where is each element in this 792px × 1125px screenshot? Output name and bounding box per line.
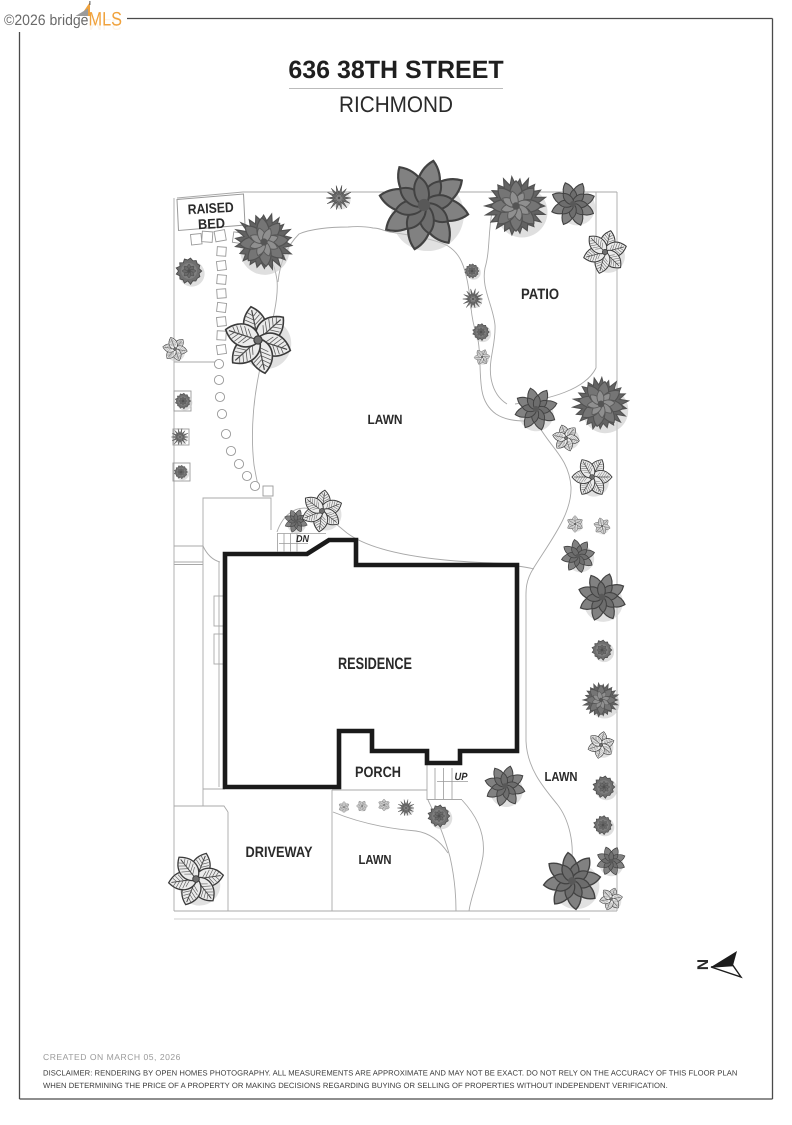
svg-text:N: N [695,959,712,970]
svg-text:PATIO: PATIO [521,286,559,303]
svg-text:PORCH: PORCH [355,764,401,781]
svg-text:CREATED ON MARCH 05, 2026: CREATED ON MARCH 05, 2026 [43,1052,181,1062]
svg-text:WHEN DETERMINING THE PRICE OF: WHEN DETERMINING THE PRICE OF A PROPERTY… [43,1081,668,1090]
svg-text:MLS: MLS [89,15,123,33]
svg-text:RAISED: RAISED [187,199,234,217]
svg-text:©2026 bridge: ©2026 bridge [4,12,89,29]
svg-text:LAWN: LAWN [368,412,403,427]
svg-text:LAWN: LAWN [359,852,392,867]
svg-text:RESIDENCE: RESIDENCE [338,655,412,673]
svg-text:636 38TH STREET: 636 38TH STREET [288,56,503,84]
svg-text:DISCLAIMER: RENDERING BY OPEN: DISCLAIMER: RENDERING BY OPEN HOMES PHOT… [43,1069,737,1078]
svg-text:LAWN: LAWN [545,769,578,784]
svg-text:UP: UP [455,771,469,783]
svg-text:DRIVEWAY: DRIVEWAY [246,844,313,861]
svg-text:BED: BED [198,215,226,232]
svg-text:RICHMOND: RICHMOND [339,92,453,117]
svg-text:DN: DN [296,534,310,545]
